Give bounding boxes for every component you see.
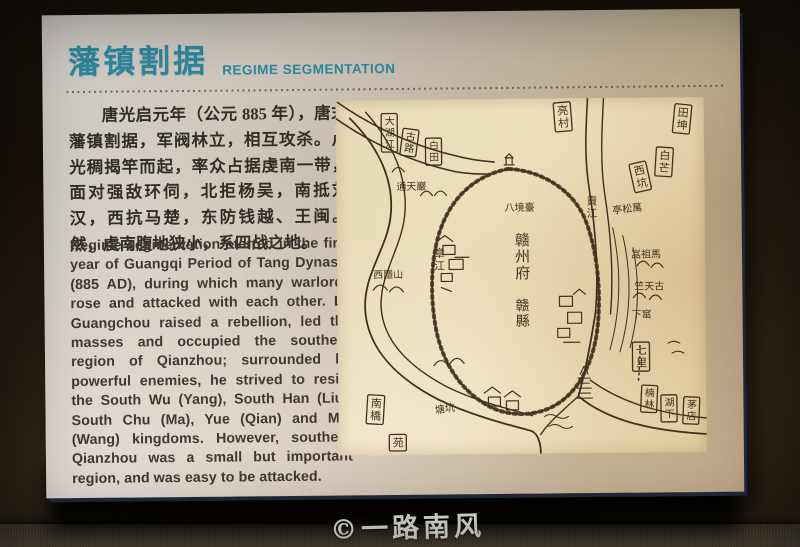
svg-text:大湖江: 大湖江 <box>385 114 395 150</box>
svg-text:八境臺: 八境臺 <box>505 201 535 214</box>
svg-text:竺天古: 竺天古 <box>634 279 664 292</box>
map-label: 嵓祖馬 <box>631 247 661 260</box>
svg-text:貢江: 貢江 <box>586 195 597 221</box>
exhibit-panel: 藩镇割据 REGIME SEGMENTATION 唐光启元年（公元 885 年）… <box>42 9 745 499</box>
svg-text:西隱山: 西隱山 <box>373 268 403 281</box>
map-label: 亭松萬 <box>611 201 642 217</box>
svg-text:田坤: 田坤 <box>676 107 689 132</box>
north-terrace-tower <box>504 154 514 165</box>
svg-text:湖下: 湖下 <box>664 397 674 421</box>
map-label: 八境臺 <box>505 201 535 214</box>
map-label: 七里 <box>632 342 649 371</box>
photographer-watermark: ©一路南风 <box>330 504 486 547</box>
map-label: 古路 <box>400 128 419 157</box>
panel-title-english: REGIME SEGMENTATION <box>222 61 395 82</box>
map-label: 白芒 <box>655 147 674 177</box>
ancient-map-drawing: 亮村田坤白芒西坑大湖江古路白田南橋苑七里楠林湖下茅店亭松萬嵓祖馬竺天古下窰塘坑通… <box>336 97 707 456</box>
svg-text:苑: 苑 <box>393 436 404 449</box>
map-label: 茅店 <box>683 397 700 425</box>
map-label: 苑 <box>389 434 406 451</box>
map-label: 赣州府 <box>515 232 530 282</box>
map-label: 田坤 <box>672 104 692 134</box>
map-label: 西坑 <box>629 161 652 193</box>
svg-text:白田: 白田 <box>429 139 439 164</box>
panel-title-row: 藩镇割据 REGIME SEGMENTATION <box>68 34 396 83</box>
svg-text:楠林: 楠林 <box>644 386 655 411</box>
ancient-city-map: 亮村田坤白芒西坑大湖江古路白田南橋苑七里楠林湖下茅店亭松萬嵓祖馬竺天古下窰塘坑通… <box>336 97 707 456</box>
map-label: 楠林 <box>641 385 658 413</box>
svg-text:通天巖: 通天巖 <box>396 180 426 193</box>
map-label: 竺天古 <box>634 279 664 292</box>
map-label: 通天巖 <box>396 180 426 193</box>
svg-text:七里: 七里 <box>636 344 647 370</box>
map-label: 下窰 <box>632 308 652 321</box>
svg-text:茅店: 茅店 <box>686 399 697 423</box>
svg-text:塘坑: 塘坑 <box>434 401 456 417</box>
svg-text:章江: 章江 <box>434 246 445 273</box>
gong-river-bank2 <box>601 98 612 314</box>
map-label: 章江 <box>434 246 445 273</box>
svg-text:白芒: 白芒 <box>658 148 671 175</box>
map-label: 塘坑 <box>434 401 456 417</box>
river-current-line <box>619 236 630 352</box>
southeast-buildings <box>557 289 586 342</box>
dotted-divider <box>66 85 724 93</box>
water-waves <box>544 341 685 428</box>
svg-text:亮村: 亮村 <box>557 103 570 130</box>
english-paragraph: Regime segmentation started in the first… <box>70 234 353 489</box>
map-label: 貢江 <box>586 195 597 221</box>
panel-title-chinese: 藩镇割据 <box>68 36 208 83</box>
svg-text:下窰: 下窰 <box>632 308 652 321</box>
svg-text:嵓祖馬: 嵓祖馬 <box>631 247 661 260</box>
map-label: 南橋 <box>366 395 385 425</box>
svg-text:赣縣: 赣縣 <box>515 298 529 330</box>
svg-text:亭松萬: 亭松萬 <box>611 201 642 217</box>
svg-text:南橋: 南橋 <box>370 397 383 423</box>
svg-text:赣州府: 赣州府 <box>515 232 530 282</box>
svg-text:古路: 古路 <box>403 130 416 156</box>
map-label: 西隱山 <box>373 268 403 281</box>
map-label: 湖下 <box>661 395 677 422</box>
map-label: 赣縣 <box>515 298 529 330</box>
map-label: 亮村 <box>553 102 572 132</box>
